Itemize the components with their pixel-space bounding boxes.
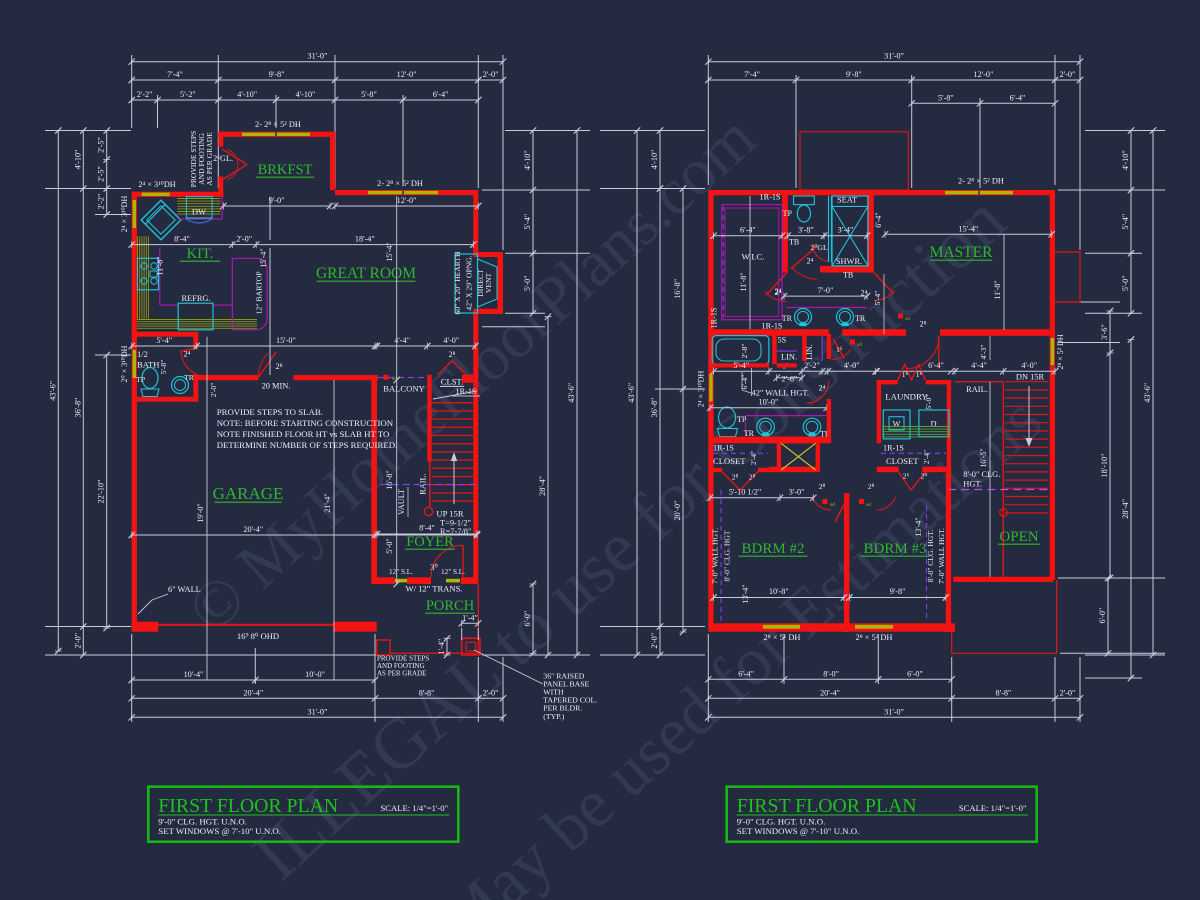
svg-text:FIRST FLOOR PLAN: FIRST FLOOR PLAN: [737, 795, 917, 817]
svg-text:20'-4": 20'-4": [243, 525, 263, 534]
svg-text:28'-4": 28'-4": [1121, 499, 1130, 519]
svg-text:5'-4": 5'-4": [156, 336, 172, 345]
svg-text:43'-6": 43'-6": [48, 381, 57, 401]
svg-text:BALCONY: BALCONY: [383, 384, 425, 394]
svg-text:2'-0": 2'-0": [73, 633, 82, 649]
svg-text:2⁰GL.: 2⁰GL.: [810, 243, 829, 252]
svg-text:3'-6": 3'-6": [1100, 324, 1109, 340]
svg-text:2'-0": 2'-0": [483, 70, 499, 79]
svg-text:20 MIN.: 20 MIN.: [262, 382, 291, 391]
svg-text:5'-4": 5'-4": [523, 214, 532, 230]
svg-text:2⁰ × 3¹⁰DH: 2⁰ × 3¹⁰DH: [120, 345, 129, 382]
svg-text:2⁶GL.: 2⁶GL.: [213, 154, 233, 163]
svg-text:8'-0" CLG. HGT.: 8'-0" CLG. HGT.: [926, 530, 935, 583]
svg-text:1⁶: 1⁶: [836, 345, 843, 354]
svg-text:REFRG.: REFRG.: [181, 294, 210, 303]
svg-text:4'-0": 4'-0": [844, 361, 860, 370]
svg-text:16'-8": 16'-8": [673, 279, 682, 299]
svg-text:2⁶: 2⁶: [903, 472, 910, 481]
svg-text:2⁸: 2⁸: [449, 350, 456, 359]
svg-text:CLST.: CLST.: [441, 377, 464, 387]
svg-text:31'-0": 31'-0": [884, 52, 904, 61]
svg-text:4'-4": 4'-4": [971, 361, 987, 370]
svg-text:GARAGE: GARAGE: [213, 484, 284, 503]
svg-text:28'-4": 28'-4": [538, 476, 547, 496]
svg-text:5'-4": 5'-4": [1121, 214, 1130, 230]
svg-text:6'-0": 6'-0": [1098, 608, 1107, 624]
svg-text:TR: TR: [744, 429, 755, 438]
svg-text:2⁴ × 3¹⁰DH: 2⁴ × 3¹⁰DH: [120, 196, 129, 233]
svg-text:6'-4": 6'-4": [740, 226, 756, 235]
svg-text:1R-1S: 1R-1S: [760, 193, 781, 202]
svg-text:3'-4": 3'-4": [838, 226, 854, 235]
svg-text:12'-0": 12'-0": [397, 196, 417, 205]
svg-text:PROVIDE STEPS TO SLAB.: PROVIDE STEPS TO SLAB.: [217, 407, 323, 417]
svg-text:LIN.: LIN.: [781, 353, 797, 362]
svg-text:8'-0" CLG. HGT: 8'-0" CLG. HGT: [723, 530, 732, 581]
svg-text:18'-4": 18'-4": [355, 235, 375, 244]
svg-text:DN 15R: DN 15R: [1016, 373, 1045, 382]
svg-text:4'-0": 4'-0": [443, 336, 459, 345]
svg-text:2'-0": 2'-0": [1060, 688, 1076, 697]
svg-text:1R-1S: 1R-1S: [710, 307, 719, 328]
svg-text:2'-8": 2'-8": [740, 344, 749, 359]
svg-text:3'-8": 3'-8": [798, 226, 814, 235]
svg-text:7'-0": 7'-0": [818, 286, 834, 295]
svg-text:TP: TP: [136, 375, 146, 384]
svg-text:8'-0" CLG.: 8'-0" CLG.: [963, 470, 1000, 479]
svg-text:2- 2⁸ × 5² DH: 2- 2⁸ × 5² DH: [958, 176, 1004, 185]
svg-text:SET WINDOWS @ 7'-10" U.N.O.: SET WINDOWS @ 7'-10" U.N.O.: [737, 826, 860, 836]
svg-text:2⁸: 2⁸: [276, 362, 283, 371]
svg-text:2'-2": 2'-2": [97, 194, 106, 210]
svg-text:2⁸: 2⁸: [732, 473, 739, 482]
svg-text:43'-6": 43'-6": [1143, 383, 1152, 403]
svg-text:(TYP.): (TYP.): [543, 712, 564, 721]
svg-text:20'-0": 20'-0": [673, 501, 682, 521]
svg-text:2⁸: 2⁸: [819, 482, 826, 491]
svg-text:8'-4": 8'-4": [174, 235, 190, 244]
svg-text:1R-1S: 1R-1S: [762, 322, 783, 331]
svg-text:DETERMINE NUMBER OF STEPS REQU: DETERMINE NUMBER OF STEPS REQUIRED.: [217, 440, 398, 450]
svg-text:6'-4": 6'-4": [433, 90, 449, 99]
svg-text:2⁸ × 5² DH: 2⁸ × 5² DH: [1056, 334, 1065, 369]
svg-text:AS PER GRADE: AS PER GRADE: [205, 132, 214, 186]
svg-text:2'-2": 2'-2": [137, 90, 153, 99]
svg-text:9'-8": 9'-8": [890, 587, 906, 596]
svg-text:BDRM #3: BDRM #3: [864, 541, 927, 557]
svg-text:19'-0": 19'-0": [196, 503, 205, 522]
svg-text:MASTER: MASTER: [930, 244, 994, 261]
svg-text:36'-8": 36'-8": [650, 398, 659, 418]
svg-text:43'-6": 43'-6": [567, 383, 576, 403]
svg-text:TR: TR: [184, 373, 195, 382]
svg-text:2'-0": 2'-0": [483, 688, 499, 697]
svg-text:KIT.: KIT.: [187, 246, 214, 262]
svg-text:GREAT ROOM: GREAT ROOM: [316, 265, 416, 282]
svg-text:TP: TP: [737, 415, 747, 424]
svg-text:21'-4": 21'-4": [323, 493, 332, 512]
svg-text:2'-4": 2'-4": [749, 451, 758, 465]
svg-text:sd: sd: [830, 502, 835, 508]
svg-text:42" X 29" OPNG.: 42" X 29" OPNG.: [465, 255, 474, 310]
svg-text:5'-0": 5'-0": [1121, 275, 1130, 291]
svg-text:12" S.L.: 12" S.L.: [389, 568, 413, 576]
svg-text:VAULT: VAULT: [397, 489, 406, 515]
svg-text:4'-0": 4'-0": [1021, 361, 1037, 370]
svg-text:3⁰: 3⁰: [430, 563, 438, 572]
svg-text:1R-1S: 1R-1S: [883, 444, 904, 453]
svg-text:5'-8": 5'-8": [938, 93, 954, 102]
svg-text:2⁴: 2⁴: [184, 350, 191, 359]
svg-text:2'-6": 2'-6": [782, 375, 798, 384]
svg-text:OPEN: OPEN: [999, 529, 1038, 545]
svg-text:3'-0": 3'-0": [789, 487, 805, 496]
svg-text:sd: sd: [866, 502, 871, 508]
svg-text:5'-0": 5'-0": [523, 275, 532, 291]
svg-text:2⁸: 2⁸: [920, 320, 927, 329]
svg-text:sd: sd: [905, 316, 910, 322]
svg-text:FIRST FLOOR PLAN: FIRST FLOOR PLAN: [158, 795, 338, 817]
svg-text:PORCH: PORCH: [426, 598, 475, 614]
svg-text:CLOSET: CLOSET: [713, 456, 746, 466]
svg-text:2'-2": 2'-2": [804, 361, 820, 370]
svg-text:4'-10": 4'-10": [237, 90, 257, 99]
svg-text:SET WINDOWS @ 7'-10" U.N.O.: SET WINDOWS @ 7'-10" U.N.O.: [158, 826, 281, 836]
svg-text:BRKFST: BRKFST: [258, 162, 313, 178]
svg-text:31'-0": 31'-0": [307, 52, 327, 61]
svg-text:9'-0" CLG. HGT. U.N.O.: 9'-0" CLG. HGT. U.N.O.: [737, 817, 826, 827]
svg-text:SCALE: 1/4"=1'-0": SCALE: 1/4"=1'-0": [959, 803, 1027, 813]
svg-text:6'-4": 6'-4": [740, 375, 749, 390]
svg-text:W/ 12" TRANS.: W/ 12" TRANS.: [405, 584, 462, 594]
svg-text:2⁴ × 3¹⁰DH: 2⁴ × 3¹⁰DH: [138, 180, 175, 189]
svg-text:5S: 5S: [778, 336, 787, 345]
svg-text:1/2: 1/2: [137, 349, 148, 359]
svg-text:sd: sd: [857, 342, 862, 348]
svg-text:10'-8": 10'-8": [769, 587, 789, 596]
svg-text:5'-4": 5'-4": [733, 361, 749, 370]
svg-text:1⁸: 1⁸: [902, 370, 909, 379]
svg-text:11'-8": 11'-8": [739, 272, 748, 291]
svg-text:TB: TB: [789, 238, 799, 247]
svg-text:4'-10": 4'-10": [650, 150, 659, 170]
svg-text:W.I.C.: W.I.C.: [742, 252, 765, 262]
svg-text:5'-10 1/2": 5'-10 1/2": [729, 487, 761, 496]
svg-text:9'-8": 9'-8": [269, 70, 285, 79]
svg-text:RAIL.: RAIL.: [966, 385, 988, 394]
svg-text:9'-0": 9'-0": [269, 196, 285, 205]
svg-text:12" BARTOP: 12" BARTOP: [255, 271, 264, 315]
svg-text:16⁹ 8⁰ OHD: 16⁹ 8⁰ OHD: [237, 631, 279, 641]
svg-text:TP: TP: [783, 209, 793, 218]
svg-text:SHWR.: SHWR.: [836, 257, 862, 266]
svg-text:9'-8": 9'-8": [846, 70, 862, 79]
svg-text:7'-4": 7'-4": [167, 70, 183, 79]
svg-text:5'-2": 5'-2": [180, 90, 196, 99]
svg-text:CLOSET: CLOSET: [886, 456, 919, 466]
svg-text:AS PER GRADE: AS PER GRADE: [377, 670, 426, 678]
svg-text:4'-10": 4'-10": [523, 150, 532, 170]
svg-text:2'-4": 2'-4": [922, 450, 931, 464]
svg-text:2'-0": 2'-0": [209, 383, 218, 398]
svg-text:VENT: VENT: [484, 273, 493, 294]
svg-text:2- 2⁸ × 5² DH: 2- 2⁸ × 5² DH: [255, 120, 301, 129]
svg-text:20'-4": 20'-4": [243, 688, 263, 697]
svg-text:9'-0" CLG. HGT. U.N.O.: 9'-0" CLG. HGT. U.N.O.: [158, 817, 247, 827]
svg-text:SCALE: 1/4"=1'-0": SCALE: 1/4"=1'-0": [380, 803, 448, 813]
svg-text:31'-0": 31'-0": [307, 707, 327, 716]
svg-text:TB: TB: [843, 271, 853, 280]
svg-text:20'-4": 20'-4": [820, 688, 840, 697]
svg-text:1R-1S: 1R-1S: [713, 444, 734, 453]
svg-text:13'-4": 13'-4": [914, 517, 923, 536]
svg-text:1'-4": 1'-4": [462, 613, 478, 622]
svg-text:31'-0": 31'-0": [884, 707, 904, 716]
svg-text:12'-0": 12'-0": [397, 70, 417, 79]
svg-text:6'-4": 6'-4": [738, 669, 754, 678]
svg-text:15'-0": 15'-0": [276, 336, 296, 345]
svg-text:22'-10": 22'-10": [97, 480, 106, 504]
svg-text:11'-8": 11'-8": [156, 256, 165, 275]
svg-text:HGT.: HGT.: [963, 480, 982, 489]
svg-text:13'-4": 13'-4": [741, 584, 750, 603]
svg-text:15'-4": 15'-4": [259, 248, 268, 267]
svg-text:12'-0": 12'-0": [973, 70, 993, 79]
svg-text:4'-10": 4'-10": [73, 150, 82, 170]
svg-text:2'-5": 2'-5": [97, 137, 106, 153]
svg-text:6'-4": 6'-4": [874, 212, 883, 227]
svg-text:10'-4": 10'-4": [184, 670, 204, 679]
svg-text:6'-4": 6'-4": [1010, 93, 1026, 102]
svg-text:BDRM #2: BDRM #2: [742, 541, 805, 557]
svg-text:8'-8": 8'-8": [996, 688, 1012, 697]
svg-text:6'-0": 6'-0": [523, 611, 532, 627]
svg-text:11'-8": 11'-8": [993, 280, 1002, 299]
svg-text:4'-10": 4'-10": [296, 90, 316, 99]
svg-text:SEAT: SEAT: [837, 196, 857, 205]
svg-text:43'-6": 43'-6": [627, 383, 636, 403]
svg-text:16'-5": 16'-5": [979, 448, 988, 467]
svg-text:2⁸ × 5¹ DH: 2⁸ × 5¹ DH: [764, 633, 801, 642]
svg-text:42" WALL HGT.: 42" WALL HGT.: [752, 389, 809, 398]
svg-text:2⁴ × 3¹⁰DH: 2⁴ × 3¹⁰DH: [697, 371, 706, 408]
svg-text:2'-0": 2'-0": [650, 633, 659, 649]
svg-text:2'-5": 2'-5": [97, 166, 106, 182]
svg-text:8'-0": 8'-0": [823, 669, 839, 678]
svg-text:W: W: [893, 420, 901, 429]
svg-text:15'-4": 15'-4": [958, 224, 978, 233]
svg-text:2'-0": 2'-0": [1060, 70, 1076, 79]
svg-text:DW: DW: [192, 207, 207, 217]
svg-text:TR: TR: [855, 314, 866, 323]
svg-text:10'-0": 10'-0": [305, 670, 325, 679]
svg-text:TR: TR: [782, 314, 793, 323]
svg-text:6" WALL: 6" WALL: [168, 585, 201, 594]
svg-text:5'-8": 5'-8": [361, 90, 377, 99]
svg-text:D: D: [930, 420, 936, 429]
svg-text:NOTE FINISHED FLOOR HT vs SLAB: NOTE FINISHED FLOOR HT vs SLAB HT TO: [217, 429, 390, 439]
svg-text:60" X 20" HEARTH: 60" X 20" HEARTH: [453, 251, 462, 314]
svg-text:2⁴: 2⁴: [861, 289, 868, 298]
svg-text:2⁸: 2⁸: [868, 482, 875, 491]
svg-text:18'-10": 18'-10": [1100, 454, 1109, 478]
svg-text:5'-4": 5'-4": [873, 291, 882, 306]
svg-text:2⁴: 2⁴: [819, 384, 826, 393]
svg-text:UP 15R: UP 15R: [436, 509, 463, 519]
svg-text:12" S.L.: 12" S.L.: [441, 568, 465, 576]
svg-text:LIN.: LIN.: [805, 344, 814, 360]
svg-text:2⁰: 2⁰: [921, 472, 928, 481]
svg-text:7'-0" WALL HGT.: 7'-0" WALL HGT.: [937, 528, 946, 584]
svg-text:6'-0": 6'-0": [907, 669, 923, 678]
svg-text:16'-8": 16'-8": [385, 470, 394, 489]
svg-text:4'-10": 4'-10": [1121, 150, 1130, 170]
svg-text:2⁴: 2⁴: [775, 288, 782, 297]
svg-text:NOTE: BEFORE STARTING CONSTRUC: NOTE: BEFORE STARTING CONSTRUCTION: [217, 418, 394, 428]
svg-text:36'-8": 36'-8": [73, 398, 82, 418]
svg-text:2'-0": 2'-0": [236, 235, 252, 244]
svg-text:8'-8": 8'-8": [419, 688, 435, 697]
svg-text:LAUNDRY: LAUNDRY: [885, 392, 928, 402]
svg-text:10'-0": 10'-0": [758, 398, 778, 407]
svg-text:4'-3": 4'-3": [979, 345, 988, 360]
svg-text:2⁴: 2⁴: [807, 257, 814, 266]
svg-text:2⁸: 2⁸: [749, 473, 756, 482]
svg-text:7'-4": 7'-4": [744, 70, 760, 79]
svg-text:5'-0": 5'-0": [924, 395, 933, 410]
svg-text:7'-0" WALL HGT.: 7'-0" WALL HGT.: [711, 528, 720, 584]
svg-text:5'-8": 5'-8": [159, 360, 168, 375]
svg-text:2⁸ × 5² DH: 2⁸ × 5² DH: [856, 633, 893, 642]
svg-text:15'-4": 15'-4": [385, 242, 394, 261]
svg-text:1⁸: 1⁸: [916, 370, 923, 379]
svg-text:1'-4": 1'-4": [437, 639, 446, 655]
svg-text:8'-4": 8'-4": [419, 524, 435, 533]
svg-text:5'-0": 5'-0": [385, 538, 394, 553]
svg-text:2- 2⁸ × 5² DH: 2- 2⁸ × 5² DH: [377, 179, 423, 188]
svg-text:6'-4": 6'-4": [928, 361, 944, 370]
svg-text:FOYER: FOYER: [406, 534, 454, 550]
